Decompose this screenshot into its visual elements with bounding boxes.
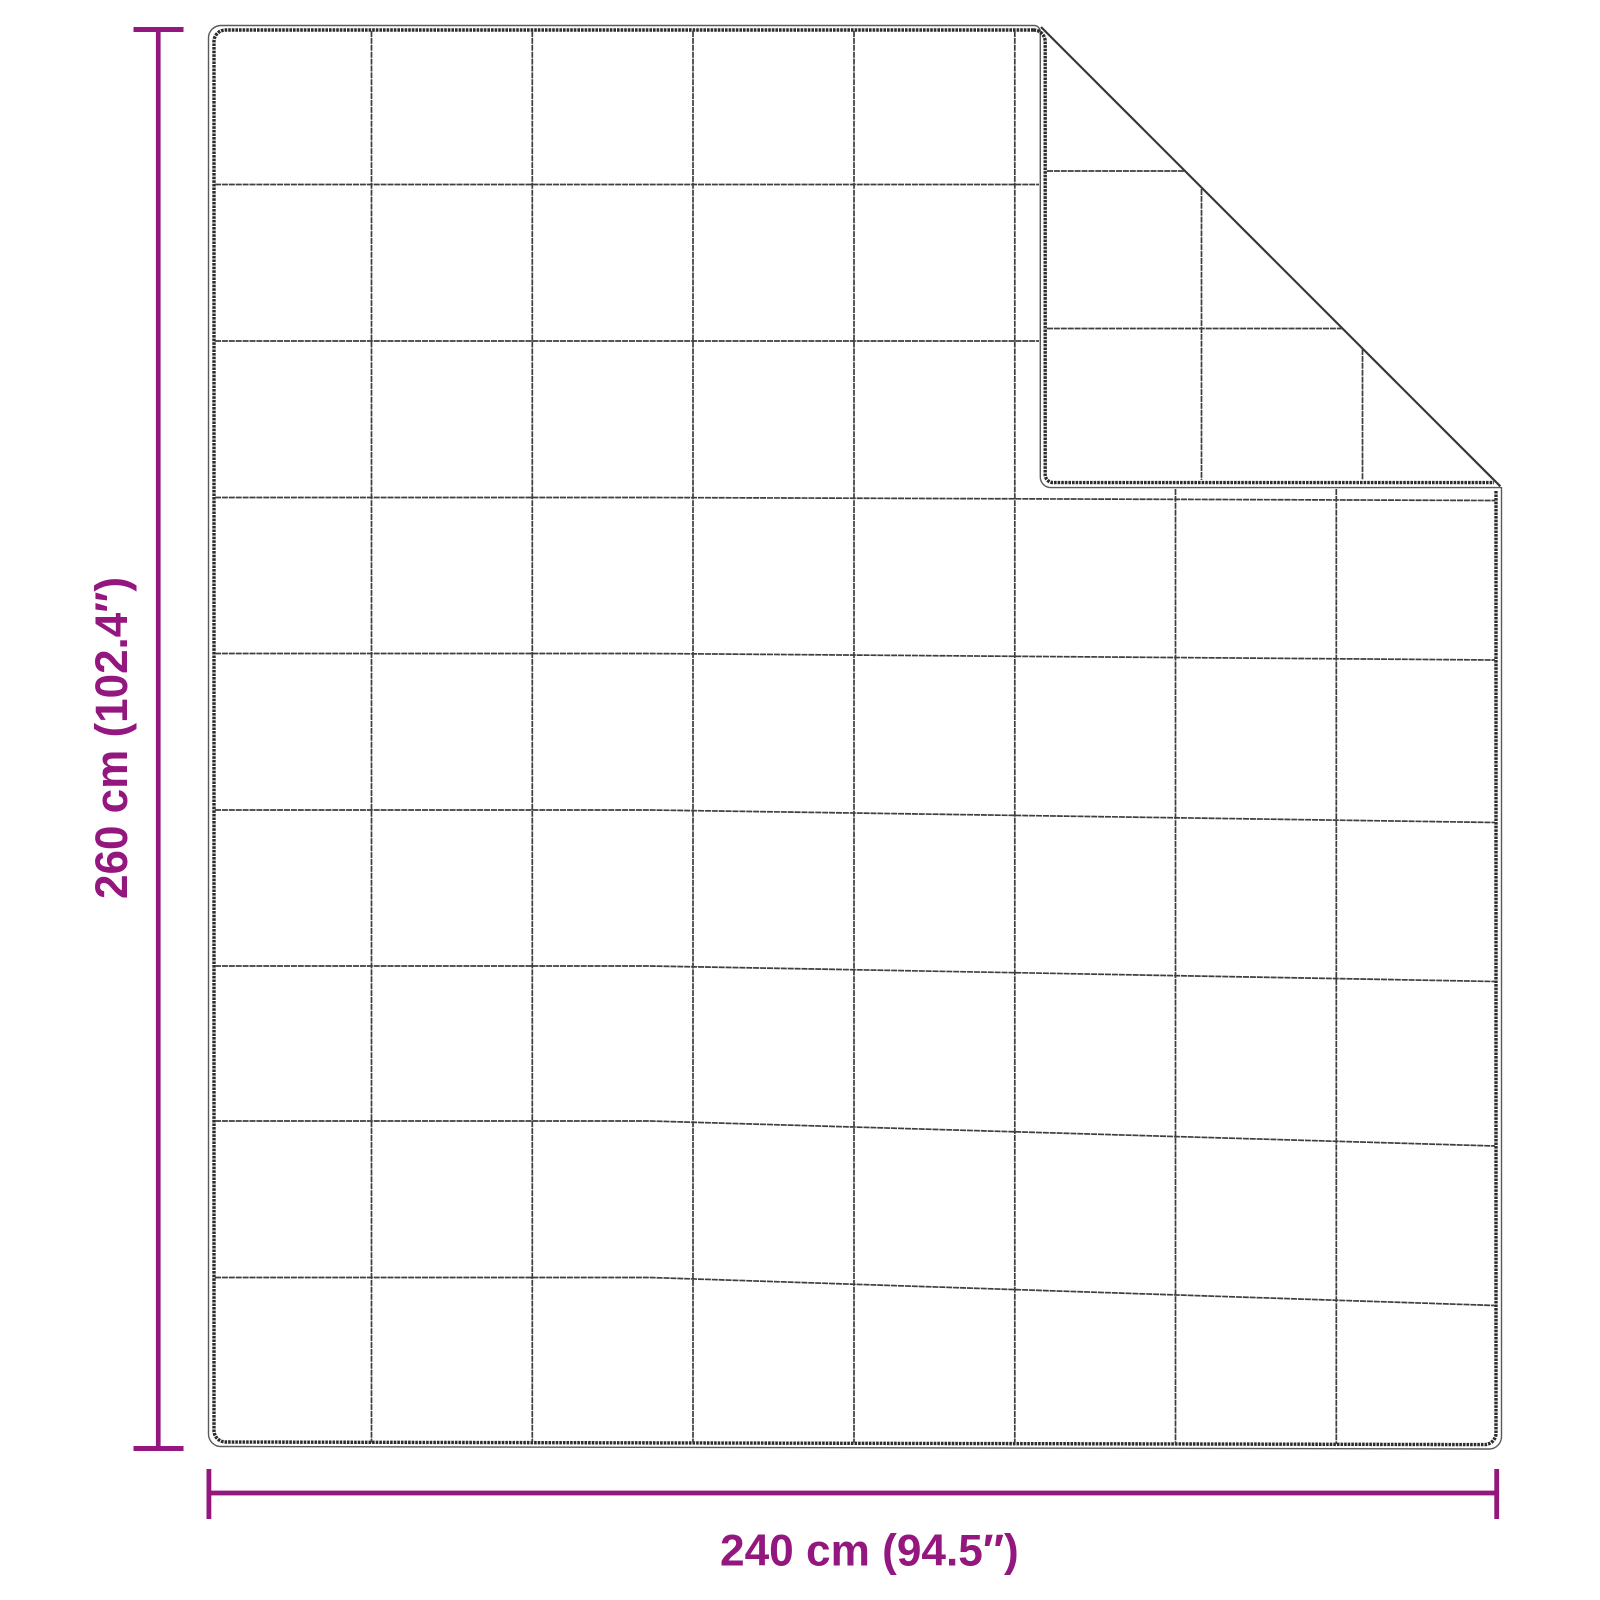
- svg-text:260 cm (102.4″): 260 cm (102.4″): [86, 577, 137, 899]
- svg-text:240 cm (94.5″): 240 cm (94.5″): [720, 1527, 1019, 1576]
